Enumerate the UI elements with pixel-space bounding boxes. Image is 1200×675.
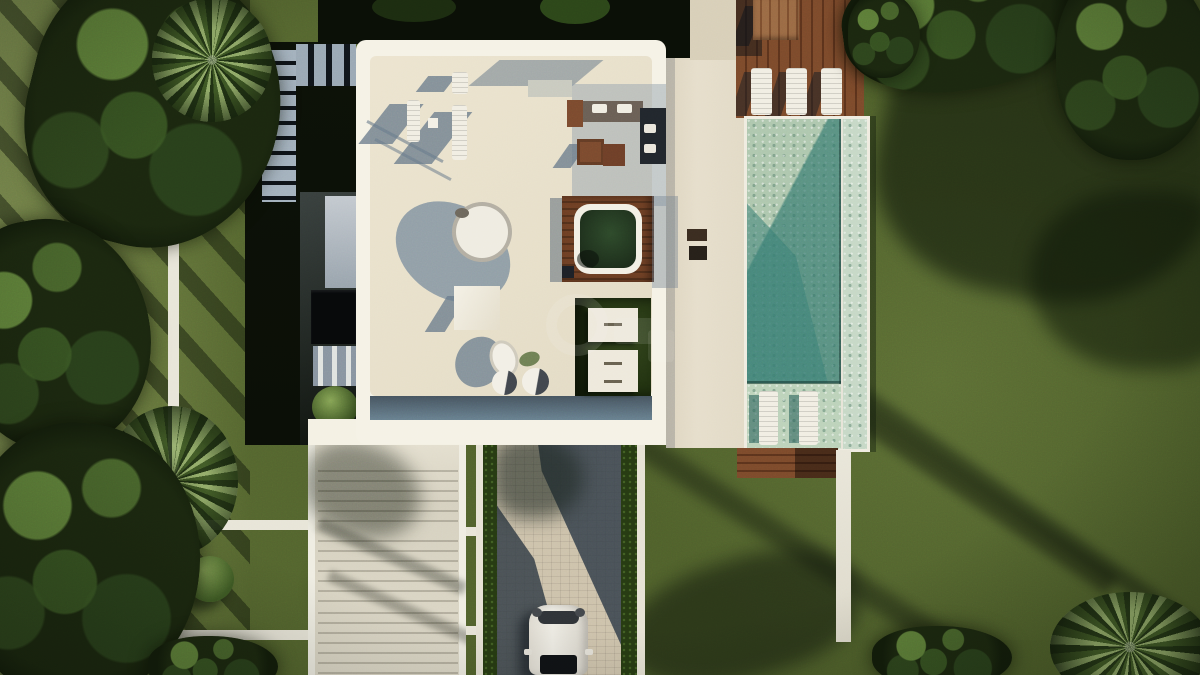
grain-texture xyxy=(0,0,1200,675)
aerial-villa-render xyxy=(0,0,1200,675)
